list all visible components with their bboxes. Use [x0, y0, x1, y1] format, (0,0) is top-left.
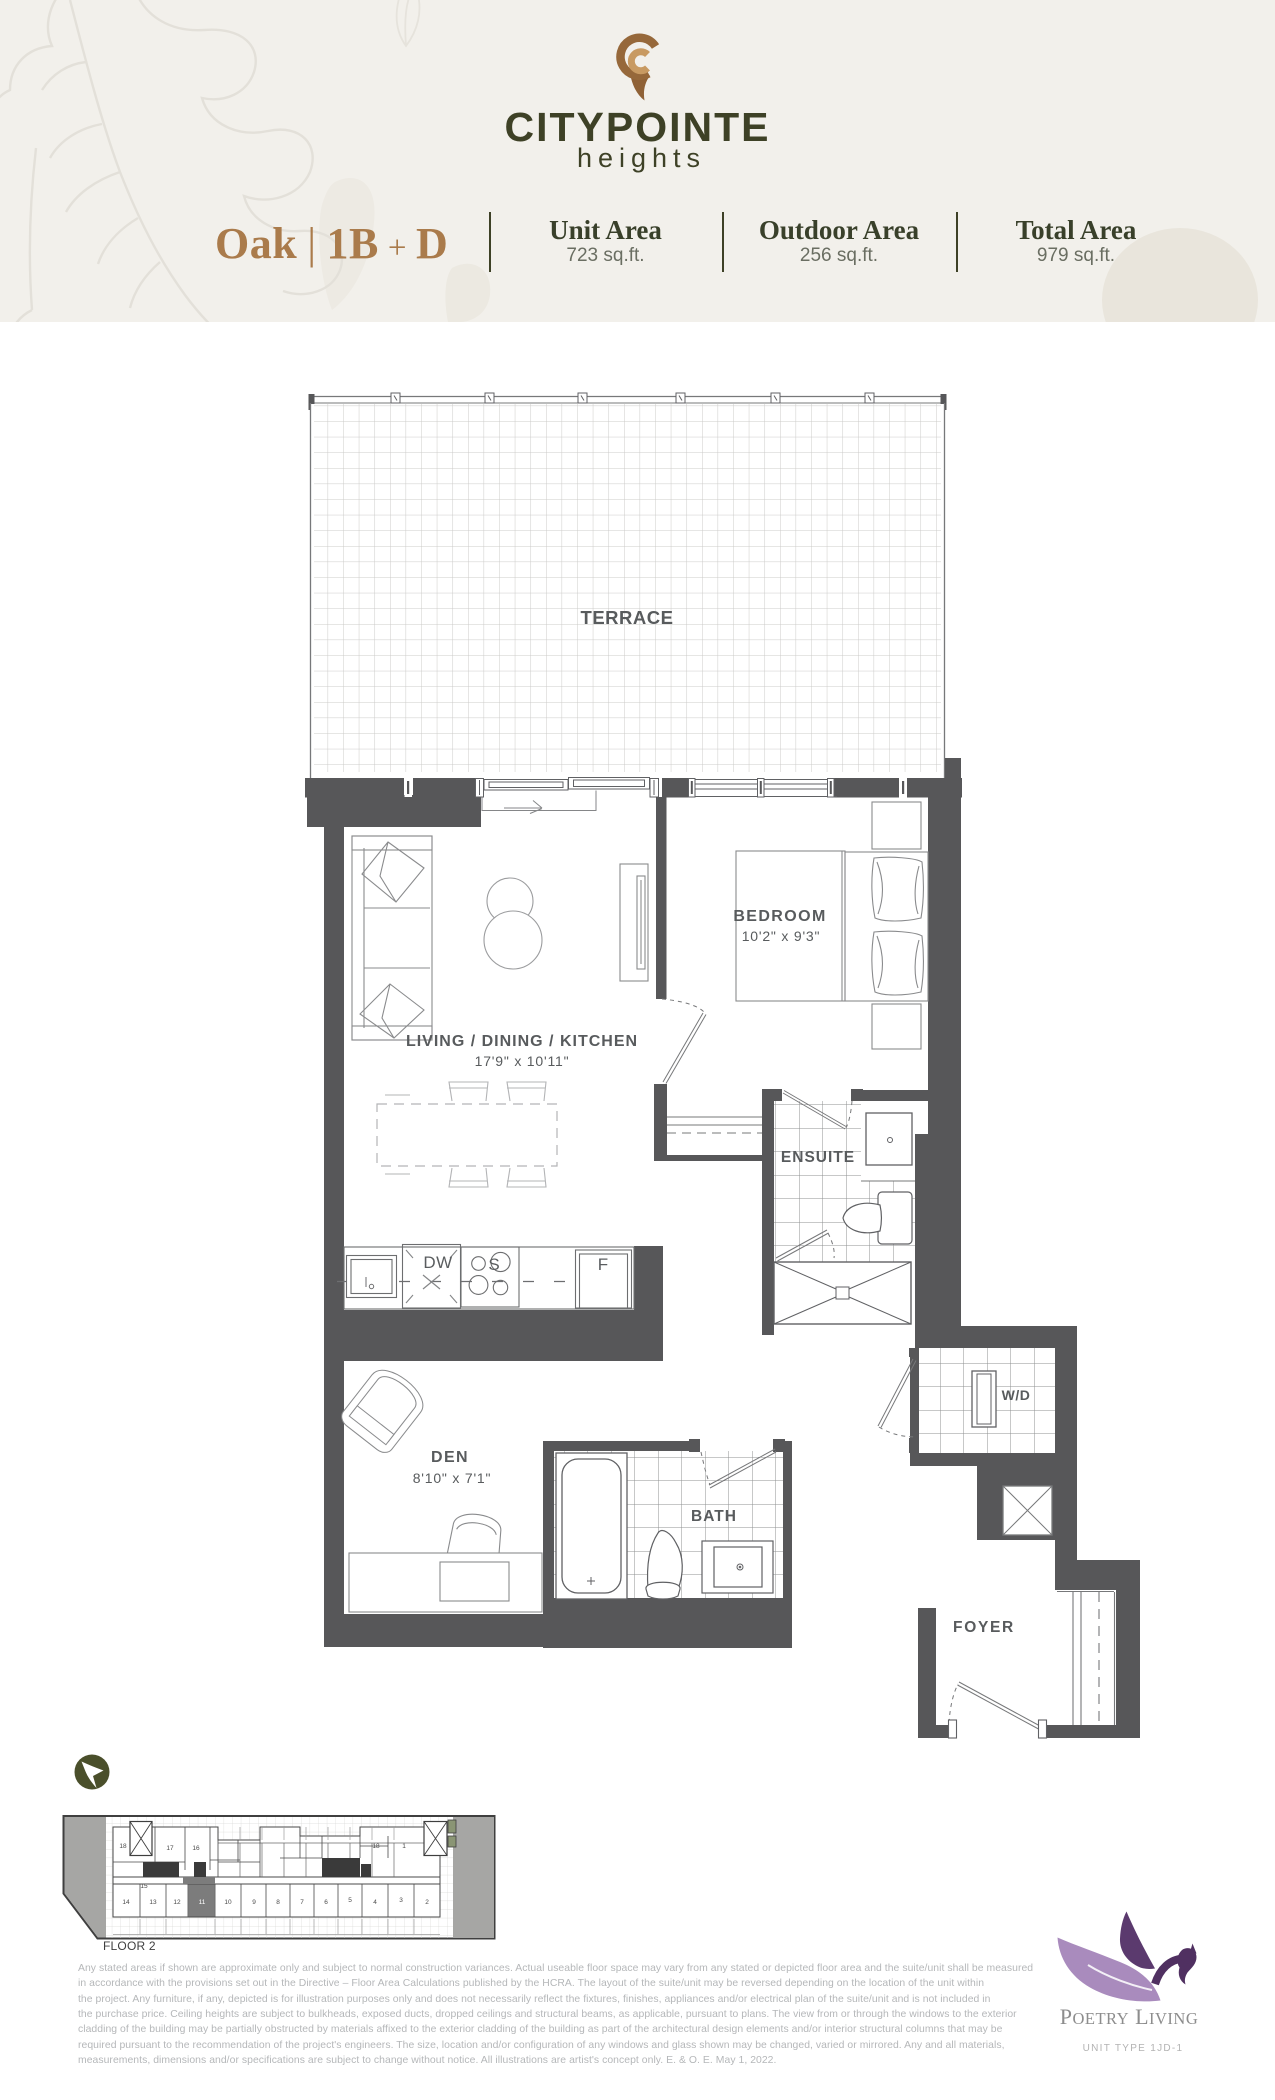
- svg-text:16: 16: [192, 1845, 200, 1852]
- svg-text:10'2" x 9'3": 10'2" x 9'3": [742, 928, 821, 944]
- svg-text:17: 17: [166, 1845, 174, 1852]
- svg-text:12: 12: [173, 1899, 181, 1906]
- svg-text:17'9" x 10'11": 17'9" x 10'11": [475, 1053, 570, 1069]
- svg-text:BEDROOM: BEDROOM: [733, 908, 826, 925]
- svg-text:ENSUITE: ENSUITE: [781, 1149, 855, 1166]
- svg-text:8: 8: [276, 1899, 280, 1906]
- svg-text:LIVING / DINING / KITCHEN: LIVING / DINING / KITCHEN: [406, 1033, 638, 1050]
- svg-text:11: 11: [199, 1899, 206, 1906]
- svg-text:13: 13: [149, 1899, 157, 1906]
- svg-text:9: 9: [252, 1899, 256, 1906]
- svg-text:18: 18: [119, 1843, 127, 1850]
- svg-text:DEN: DEN: [431, 1449, 469, 1466]
- svg-text:15: 15: [140, 1883, 148, 1890]
- svg-text:DW: DW: [423, 1253, 452, 1272]
- svg-text:F: F: [598, 1255, 608, 1274]
- svg-text:2: 2: [425, 1899, 429, 1906]
- svg-text:18: 18: [372, 1843, 380, 1850]
- svg-text:5: 5: [348, 1897, 352, 1904]
- svg-text:14: 14: [122, 1899, 130, 1906]
- svg-text:W/D: W/D: [1002, 1387, 1031, 1403]
- svg-text:4: 4: [373, 1899, 377, 1906]
- svg-text:3: 3: [399, 1897, 403, 1904]
- svg-text:BATH: BATH: [691, 1508, 737, 1525]
- svg-text:TERRACE: TERRACE: [581, 607, 674, 628]
- svg-text:FOYER: FOYER: [953, 1619, 1015, 1636]
- svg-text:1: 1: [402, 1843, 406, 1850]
- svg-text:FLOOR 2: FLOOR 2: [103, 1939, 156, 1953]
- svg-text:10: 10: [224, 1899, 232, 1906]
- svg-text:S: S: [488, 1255, 499, 1274]
- svg-text:6: 6: [324, 1899, 328, 1906]
- svg-text:7: 7: [300, 1899, 304, 1906]
- svg-text:8'10" x 7'1": 8'10" x 7'1": [413, 1470, 492, 1486]
